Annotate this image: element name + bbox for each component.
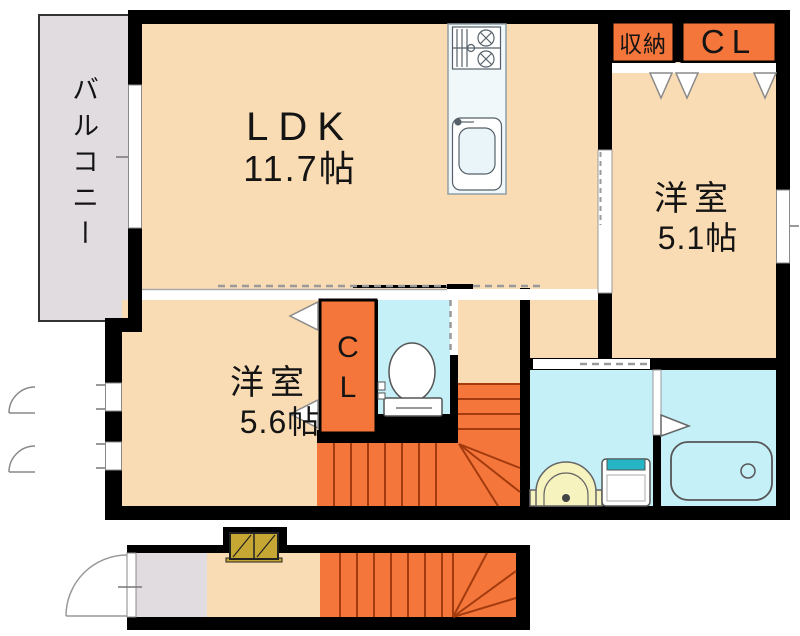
bathroom-door [653,370,689,436]
bathtub-icon [671,442,772,500]
entrance-door [66,553,142,617]
room-5-6-label: 洋室 [170,366,370,402]
washing-machine-icon [602,459,650,506]
ldk-label: LDK [160,106,440,148]
room-5-1-size-label: 5.1帖 [612,222,784,256]
storage-label: 収納 [612,22,674,62]
washroom-sliding-door [533,359,650,369]
folding-door-triangles [650,73,776,98]
shoebox-icon [226,533,282,562]
left-window-upper [9,383,122,413]
sink-icon [453,118,502,190]
room-5-1-door [598,150,612,293]
stove-icon [453,27,501,69]
hall-closet-char1: C [330,332,366,364]
balcony-label: バルコニー [40,30,126,300]
ldk-size-label: 11.7帖 [160,150,440,188]
floor-plan: バルコニー LDK 11.7帖 収納 CL 洋室 5.1帖 C L 洋室 5.6… [0,0,800,636]
stairs-1f-treads [340,553,516,617]
left-window-lower [9,442,122,472]
washbasin-icon [530,462,602,506]
room-5-6-size-label: 5.6帖 [172,406,388,440]
kitchen-unit [448,24,506,194]
room-5-1-label: 洋室 [612,182,776,218]
closet-label: CL [682,22,776,62]
